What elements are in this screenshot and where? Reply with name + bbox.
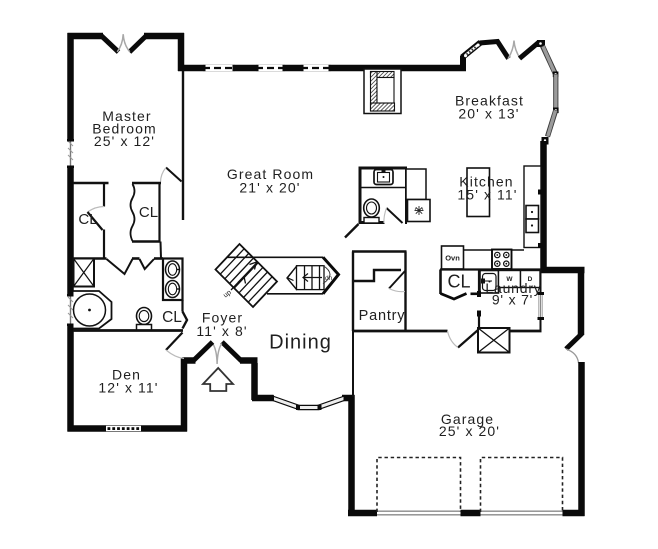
svg-text:Dining: Dining xyxy=(269,332,332,354)
svg-text:12' x 11': 12' x 11' xyxy=(98,380,158,396)
svg-text:25' x 20': 25' x 20' xyxy=(439,423,500,439)
svg-text:25' x 12': 25' x 12' xyxy=(94,133,155,149)
svg-text:CL: CL xyxy=(78,211,97,228)
svg-text:CL: CL xyxy=(447,272,470,292)
svg-text:11' x 8': 11' x 8' xyxy=(196,323,247,339)
svg-text:20' x 13': 20' x 13' xyxy=(458,106,519,122)
svg-text:CL: CL xyxy=(139,204,158,221)
svg-text:Pantry: Pantry xyxy=(359,308,406,324)
svg-text:15' x 11': 15' x 11' xyxy=(457,187,517,203)
svg-text:21' x 20': 21' x 20' xyxy=(239,180,300,196)
svg-text:9' x 7': 9' x 7' xyxy=(492,292,533,308)
svg-text:Ovn: Ovn xyxy=(445,254,460,263)
svg-text:dn: dn xyxy=(325,275,333,282)
svg-text:CL: CL xyxy=(162,309,182,326)
